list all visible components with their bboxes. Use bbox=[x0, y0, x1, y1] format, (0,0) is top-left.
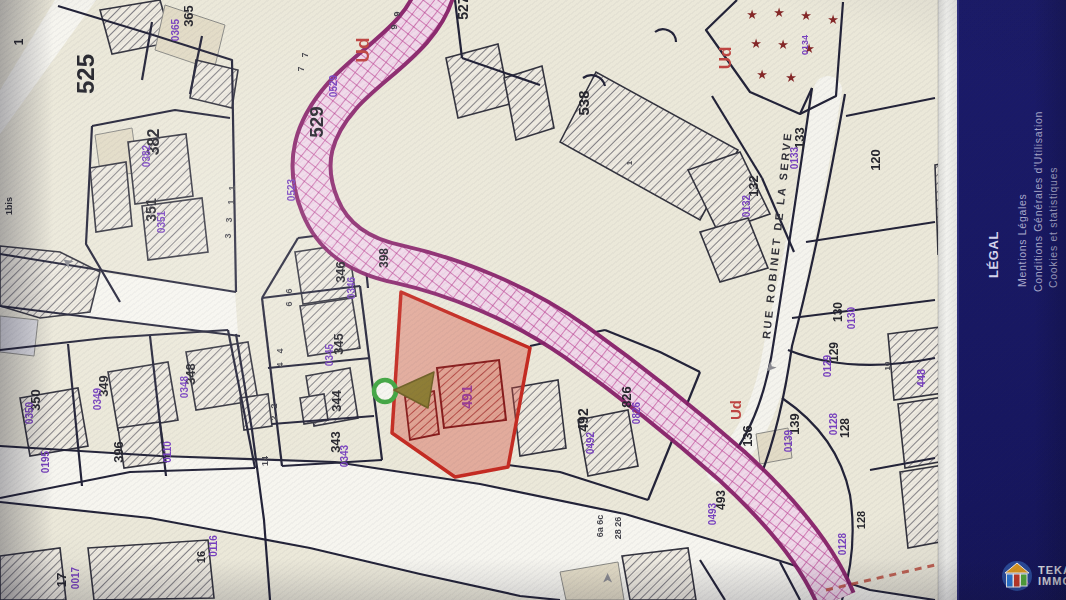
cadastre-code-label: 0139 bbox=[783, 429, 794, 452]
cadastre-code-label: 0350 bbox=[24, 401, 35, 424]
screen-photo: ★★★★★★★★★ 52513650365382038235103511bis1… bbox=[0, 0, 1066, 600]
star-symbol-icon: ★ bbox=[785, 70, 797, 85]
legal-heading: LÉGAL bbox=[986, 231, 1001, 278]
watermark-line2: IMMO bbox=[1038, 576, 1066, 587]
zone-ud-label: Ud bbox=[727, 400, 744, 420]
parcel-number-label: 398 bbox=[377, 248, 391, 268]
parcel-number-label: 130 bbox=[831, 302, 845, 322]
parcel-number-label: 529 bbox=[306, 106, 327, 138]
star-symbol-icon: ★ bbox=[827, 12, 839, 27]
house-number-label: 1 bbox=[226, 199, 236, 204]
house-number-label: 2 bbox=[269, 415, 279, 420]
house-number-label: 4 bbox=[275, 348, 285, 353]
link-conditions-generales[interactable]: Conditions Générales d'Utilisation bbox=[1032, 111, 1044, 292]
parcel-number-label: 396 bbox=[111, 441, 126, 463]
cadastre-code-label: 0134 bbox=[800, 35, 810, 55]
parcel-number-label: 365 bbox=[181, 5, 196, 27]
parcel-number-label: 132 bbox=[746, 175, 761, 197]
star-symbol-icon: ★ bbox=[773, 5, 785, 20]
parcel-number-label: 128 bbox=[838, 418, 852, 438]
star-symbol-icon: ★ bbox=[756, 67, 768, 82]
zone-ud-label: Ud bbox=[352, 37, 373, 62]
house-number-label: 9 bbox=[389, 24, 399, 29]
parcel-number-label: 128 bbox=[855, 511, 867, 529]
parcel-number-label: 136 bbox=[740, 425, 755, 447]
parcel-number-label: 1bis bbox=[4, 197, 14, 215]
parcel-number-label: 120 bbox=[868, 149, 883, 171]
house-number-label: 28 26 bbox=[613, 517, 623, 540]
house-number-label: 3 bbox=[224, 217, 234, 222]
cadastre-code-label: 0382 bbox=[141, 144, 152, 167]
building bbox=[90, 162, 132, 232]
road-direction-arrow-icon: ➤ bbox=[599, 572, 615, 584]
cadastre-code-label: 0345 bbox=[324, 343, 335, 366]
cadastre-code-label: 0348 bbox=[179, 375, 190, 398]
parcel-number-label: 344 bbox=[329, 389, 344, 411]
cadastre-code-label: 0826 bbox=[631, 401, 642, 424]
parcel-number-label: 538 bbox=[575, 90, 592, 115]
link-cookies-statistiques[interactable]: Cookies et statistiques bbox=[1047, 167, 1059, 288]
cadastre-code-label: 0351 bbox=[156, 210, 167, 233]
house-number-label: 6a 6c bbox=[595, 515, 605, 538]
zone-ud-label: Ud bbox=[716, 47, 735, 70]
cadastre-code-label: 0128 bbox=[828, 412, 839, 435]
screen-edge-strip bbox=[938, 0, 957, 600]
parcel-number-label: 133 bbox=[792, 127, 807, 149]
cadastre-code-label: 0343 bbox=[339, 444, 350, 467]
building bbox=[88, 540, 214, 600]
star-symbol-icon: ★ bbox=[777, 37, 789, 52]
cadastre-code-label: 0130 bbox=[846, 306, 857, 329]
legal-sidebar: LÉGAL Mentions Légales Conditions Généra… bbox=[957, 0, 1066, 600]
house-number-label: 1 bbox=[625, 160, 634, 165]
cadastre-code-label: 0116 bbox=[208, 535, 219, 557]
house-number-label: 6 bbox=[284, 301, 294, 306]
house-number-label: 4 bbox=[275, 362, 285, 367]
cadastre-code-label: 0110 bbox=[162, 441, 173, 463]
house-number-label: 14 bbox=[260, 456, 270, 466]
house-number-label: 3 bbox=[223, 233, 233, 238]
cadastre-code-label: 0492 bbox=[585, 431, 596, 454]
parcel-number-label: 527 bbox=[455, 0, 471, 20]
parcel-number-label: 16 bbox=[195, 551, 207, 563]
teka-immo-logo: TEKA IMMO bbox=[1001, 560, 1066, 592]
building bbox=[622, 548, 696, 600]
cadastre-code-label: 0523 bbox=[286, 178, 297, 201]
cadastre-code-label: 0132 bbox=[741, 194, 752, 217]
parcel-number-label: 1 bbox=[12, 38, 26, 45]
selected-parcel-number-label: 491 bbox=[459, 385, 475, 409]
star-symbol-icon: ★ bbox=[800, 8, 812, 23]
cadastre-code-label: 0195 bbox=[40, 450, 51, 473]
house-number-label: 9 bbox=[392, 11, 402, 16]
parcel-number-label: 492 bbox=[575, 408, 591, 432]
house-number-label: 1 bbox=[227, 185, 237, 190]
cadastre-code-label: 0128 bbox=[837, 532, 848, 555]
star-symbol-icon: ★ bbox=[746, 7, 758, 22]
cadastre-code-label: 0129 bbox=[822, 354, 833, 377]
cadastre-code-label: 0349 bbox=[92, 387, 103, 410]
cadastral-map[interactable]: ★★★★★★★★★ 52513650365382038235103511bis1… bbox=[0, 0, 957, 600]
cadastre-code-label: 0365 bbox=[170, 18, 181, 41]
house-number-label: 7 bbox=[300, 52, 310, 57]
marker-ring-icon bbox=[374, 380, 396, 402]
parcel-number-label: 17 bbox=[54, 573, 69, 587]
house-icon bbox=[1001, 560, 1033, 592]
cadastre-code-label: 0017 bbox=[70, 566, 81, 589]
star-symbol-icon: ★ bbox=[750, 36, 762, 51]
cadastre-code-label: 0346 bbox=[346, 276, 357, 299]
house-number-label: 6 bbox=[284, 288, 294, 293]
link-mentions-legales[interactable]: Mentions Légales bbox=[1016, 193, 1028, 287]
cadastre-code-label: 0493 bbox=[707, 502, 718, 525]
building bbox=[446, 44, 510, 118]
parcel-number-label: 525 bbox=[72, 54, 99, 94]
cadastre-code-label: 0529 bbox=[328, 74, 339, 97]
cadastre-code-label: 448 bbox=[915, 369, 927, 387]
house-number-label: 7 bbox=[296, 66, 306, 71]
building bbox=[108, 362, 178, 430]
house-number-label: 2 bbox=[269, 403, 279, 408]
house-number-label: 10 bbox=[883, 361, 892, 370]
